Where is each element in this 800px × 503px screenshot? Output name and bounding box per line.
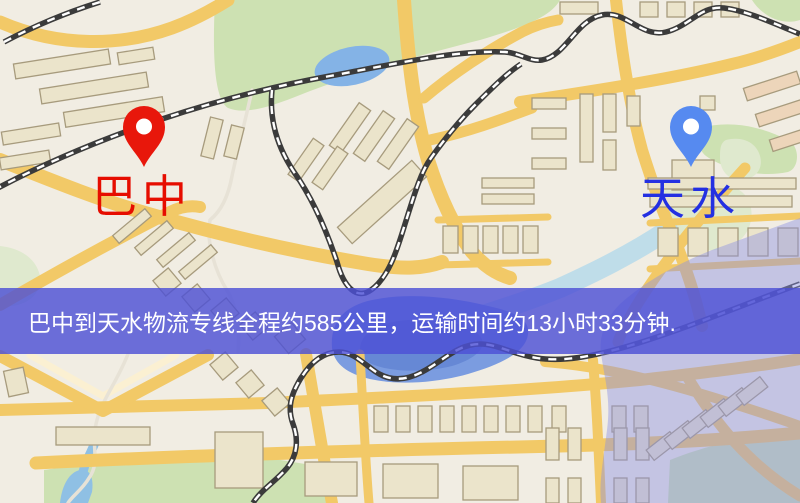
map-view[interactable]: 巴中 天水 巴中到天水物流专线全程约585公里，运输时间约13小时33分钟. (0, 0, 800, 503)
route-summary-banner: 巴中到天水物流专线全程约585公里，运输时间约13小时33分钟. (0, 288, 800, 354)
origin-city-label: 巴中 (92, 174, 192, 219)
destination-city-label: 天水 (640, 176, 740, 221)
map-canvas (0, 0, 800, 503)
